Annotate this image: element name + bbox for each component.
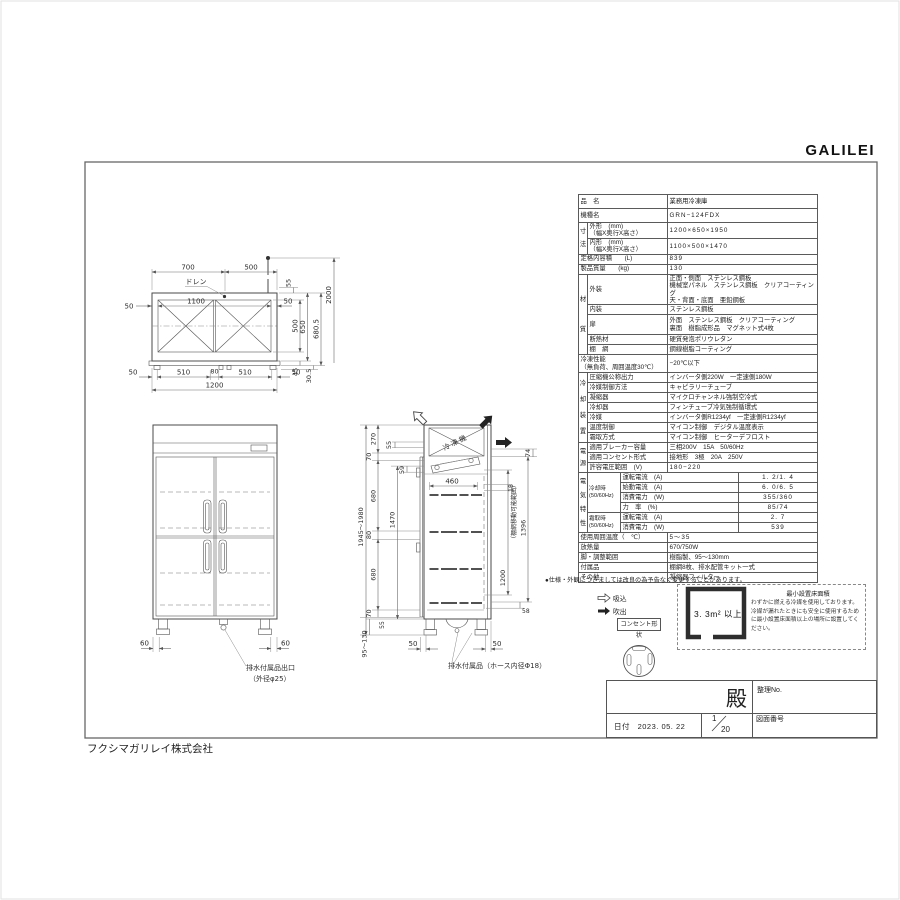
- spec-label: 内装: [588, 305, 668, 315]
- spec-label: 使用周囲温度（ ℃）: [579, 533, 668, 543]
- dim-55: 55: [285, 279, 293, 287]
- spec-value: 樹脂製、95〜130mm: [668, 553, 818, 563]
- outlet-type-label: コンセント形状: [617, 618, 661, 631]
- dim-650: 650: [299, 320, 307, 333]
- spec-label: 定格内容積 (L): [579, 254, 668, 264]
- spec-sub-cooling: 冷却時 (50/60Hz): [588, 473, 621, 513]
- spec-label: 外装: [588, 274, 668, 305]
- spec-value: 5〜35: [668, 533, 818, 543]
- spec-label: 製品質量 (kg): [579, 264, 668, 274]
- dim-60-left: 60: [140, 640, 149, 648]
- spec-label: 外形 (mm) （幅X奥行X高さ）: [588, 223, 668, 239]
- dim-500-top: 500: [244, 264, 257, 272]
- spec-label: 内形 (mm) （幅X奥行X高さ）: [588, 238, 668, 254]
- dim-55-top: 55: [385, 441, 393, 449]
- dim-50-front: 50: [409, 640, 418, 648]
- spec-label: 冷媒制御方法: [588, 383, 668, 393]
- spec-value: マイコン制御 ヒーターデフロスト: [668, 433, 818, 443]
- spec-label: 放熱量: [579, 543, 668, 553]
- spec-label: 適用ブレーカー容量: [588, 443, 668, 453]
- spec-value: 正面・側面 ステンレス鋼板 機械室パネル ステンレス鋼板 クリアコーティング 天…: [668, 274, 818, 305]
- spec-group-cooling: 冷 却 装 置: [579, 373, 588, 443]
- spec-label: 棚 網: [588, 345, 668, 355]
- spec-value: 130: [668, 264, 818, 274]
- spec-label: 冷却器: [588, 403, 668, 413]
- dim-510-b4: 510: [238, 369, 251, 377]
- dim-60-right: 60: [281, 640, 290, 648]
- spec-table: 品 名業務用冷凍庫 機種名GRN−124FDX 寸 法 外形 (mm) （幅X奥…: [578, 194, 818, 583]
- plan-view: ドレン 700 500 2000 55 500 650 680.5 45: [125, 256, 340, 393]
- spec-value: −20℃以下: [668, 355, 818, 373]
- title-block-divider: [752, 713, 753, 738]
- spec-value: ステンレス鋼板: [668, 305, 818, 315]
- spec-group-electrical: 電 気 特 性: [579, 473, 588, 533]
- min-area-warning-text: わずかに燃える冷媒を使用しております。冷媒が漏れたときにも安全に使用するために最…: [751, 599, 863, 633]
- front-view: 60 60 排水付属品出口 （外径φ25）: [140, 425, 295, 683]
- title-block-divider: [752, 681, 753, 713]
- legend-blowout-label: 吹出: [613, 606, 627, 616]
- spec-value: 839: [668, 254, 818, 264]
- galilei-logo: GALILEI: [735, 142, 875, 159]
- dim-1200-total: 1200: [206, 382, 224, 390]
- dim-58: 58: [522, 608, 530, 615]
- spec-label: 消費電力 (W): [621, 493, 739, 503]
- dim-1396: 1396: [520, 520, 528, 537]
- spec-label: 扉: [588, 315, 668, 335]
- spec-label: 運転電流 (A): [621, 513, 739, 523]
- spec-value: 85/74: [739, 503, 818, 513]
- blowout-legend-arrow-icon: [598, 607, 610, 615]
- dim-59: 59: [398, 466, 406, 474]
- dim-510-b2: 510: [177, 369, 190, 377]
- suction-legend-arrow-icon: [598, 594, 610, 602]
- spec-label: 脚・調整範囲: [579, 553, 668, 563]
- dim-leg-range: 95〜130: [361, 630, 369, 657]
- drain-hose-label: 排水付属品（ホース内径Φ18）: [448, 661, 546, 670]
- spec-sub-defrost: 霜取時 (50/60Hz): [588, 513, 621, 533]
- title-block-divider: [701, 713, 702, 738]
- spec-label: 凝縮器: [588, 393, 668, 403]
- blowout-arrow-side-icon: [496, 437, 512, 448]
- side-view: 冷凍機: [357, 408, 546, 670]
- dim-680-lower: 680: [370, 568, 378, 580]
- dim-80-b3: 80: [210, 368, 218, 376]
- spec-label: 付属品: [579, 563, 668, 573]
- spec-label: 機種名: [579, 209, 668, 223]
- spec-value: 業務用冷凍庫: [668, 195, 818, 209]
- machine-room-label: 冷凍機: [441, 432, 469, 452]
- spec-label: 消費電力 (W): [621, 523, 739, 533]
- spec-label: 冷凍性能 （無負荷、周囲温度30℃）: [579, 355, 668, 373]
- dim-1470: 1470: [389, 512, 397, 529]
- dim-55-bottom: 55: [379, 621, 386, 629]
- spec-value: 6. 0/6. 5: [739, 483, 818, 493]
- scale-numerator: 1: [712, 714, 716, 723]
- dim-680-5: 680.5: [313, 319, 321, 339]
- dim-270: 270: [370, 433, 378, 445]
- spec-group-power: 電 源: [579, 443, 588, 473]
- dim-700: 700: [181, 264, 194, 272]
- dim-460: 460: [445, 478, 458, 486]
- dim-2000: 2000: [325, 286, 333, 304]
- customer-honorific: 殿: [607, 683, 747, 713]
- date-label: 日付: [614, 722, 630, 731]
- spec-value: 670/750W: [668, 543, 818, 553]
- spec-value-model: GRN−124FDX: [668, 209, 818, 223]
- title-block-divider: [607, 713, 876, 714]
- spec-value: インバータ側220W 一定速側180W: [668, 373, 818, 383]
- spec-value: マイクロチャンネル強制空冷式: [668, 393, 818, 403]
- dim-50-rear: 50: [493, 640, 502, 648]
- control-panel: [251, 445, 267, 451]
- power-cord-plug: [266, 256, 270, 260]
- spec-label: 圧縮機公称出力: [588, 373, 668, 383]
- spec-label: 力 率 (%): [621, 503, 739, 513]
- airflow-legend-icons: [598, 594, 610, 615]
- legend-suction-label: 吸込: [613, 593, 627, 603]
- spec-value: 2. 7: [739, 513, 818, 523]
- drawing-number-label: 図面番号: [756, 714, 784, 724]
- spec-value: 355/360: [739, 493, 818, 503]
- min-area-title: 最小設置床面積: [752, 589, 864, 598]
- spec-value: マイコン制御 デジタル温度表示: [668, 423, 818, 433]
- spec-label: 冷媒: [588, 413, 668, 423]
- spec-value: 539: [739, 523, 818, 533]
- spec-value: 1200×650×1950: [668, 223, 818, 239]
- spec-label: 霜取方式: [588, 433, 668, 443]
- dim-50-b1: 50: [129, 369, 138, 377]
- dim-overall-height: 1945〜1980: [357, 507, 365, 547]
- dim-50-wall-left: 50: [125, 303, 134, 311]
- spec-group-dimensions: 寸 法: [579, 223, 588, 255]
- spec-value: 外面 ステンレス鋼板 クリアコーティング 裏面 樹脂成形品 マグネット式4枚: [668, 315, 818, 335]
- shelf-range-label: （棚網移動可能範囲）: [510, 482, 518, 542]
- spec-label: 品 名: [579, 195, 668, 209]
- outlet-shape: [624, 646, 655, 677]
- scale-denominator: 20: [721, 725, 730, 734]
- disclaimer-note: ●仕様・外観につきましては改良の為予告なく変更することがあります。: [545, 575, 746, 584]
- dim-74: 74: [524, 449, 532, 457]
- dim-1200-shelf: 1200: [499, 570, 507, 587]
- spec-label: 始動電流 (A): [621, 483, 739, 493]
- spec-value: 1100×500×1470: [668, 238, 818, 254]
- reference-no-label: 整理No.: [757, 685, 782, 695]
- spec-value: 三相200V 15A 50/60Hz: [668, 443, 818, 453]
- spec-value: 鋼線樹脂コーティング: [668, 345, 818, 355]
- spec-label: 許容電圧範囲 (V): [588, 463, 668, 473]
- drain-outlet: [221, 625, 226, 630]
- dim-50-b5: 50: [292, 369, 301, 377]
- spec-value: 180−220: [668, 463, 818, 473]
- spec-value: フィンチューブ冷気強制循環式: [668, 403, 818, 413]
- title-block: 殿 整理No. 日付 2023. 05. 22: [606, 680, 877, 738]
- spec-label: 適用コンセント形式: [588, 453, 668, 463]
- spec-value: 1. 2/1. 4: [739, 473, 818, 483]
- dim-50-wall-right: 50: [284, 298, 293, 306]
- spec-label: 温度制御: [588, 423, 668, 433]
- dim-30-5: 30.5: [305, 369, 313, 383]
- door-handles: [204, 500, 227, 573]
- spec-label: 断熱材: [588, 335, 668, 345]
- date-value: 2023. 05. 22: [638, 722, 686, 731]
- suction-arrow-icon: [410, 408, 429, 427]
- company-name: フクシマガリレイ株式会社: [87, 741, 213, 756]
- drawing-sheet: ドレン 700 500 2000 55 500 650 680.5 45: [0, 0, 900, 900]
- drain-outlet-label: 排水付属品出口: [246, 663, 295, 672]
- spec-value: 硬質発泡ポリウレタン: [668, 335, 818, 345]
- date-row: 日付 2023. 05. 22: [614, 721, 685, 732]
- dim-1100: 1100: [187, 298, 205, 306]
- spec-group-material: 材 質: [579, 274, 588, 355]
- dim-680-upper: 680: [370, 490, 378, 502]
- min-area-value: 3. 3m² 以上: [684, 608, 752, 620]
- spec-value: 接地形 3極 20A 250V: [668, 453, 818, 463]
- drain-outlet-dia-label: （外径φ25）: [249, 674, 291, 683]
- spec-value: インバータ側R1234yf 一定速側R1234yf: [668, 413, 818, 423]
- drain-label: ドレン: [186, 278, 207, 286]
- spec-label: 運転電流 (A): [621, 473, 739, 483]
- spec-value: キャピラリーチューブ: [668, 383, 818, 393]
- spec-value: 棚網8枚、排水配管キット一式: [668, 563, 818, 573]
